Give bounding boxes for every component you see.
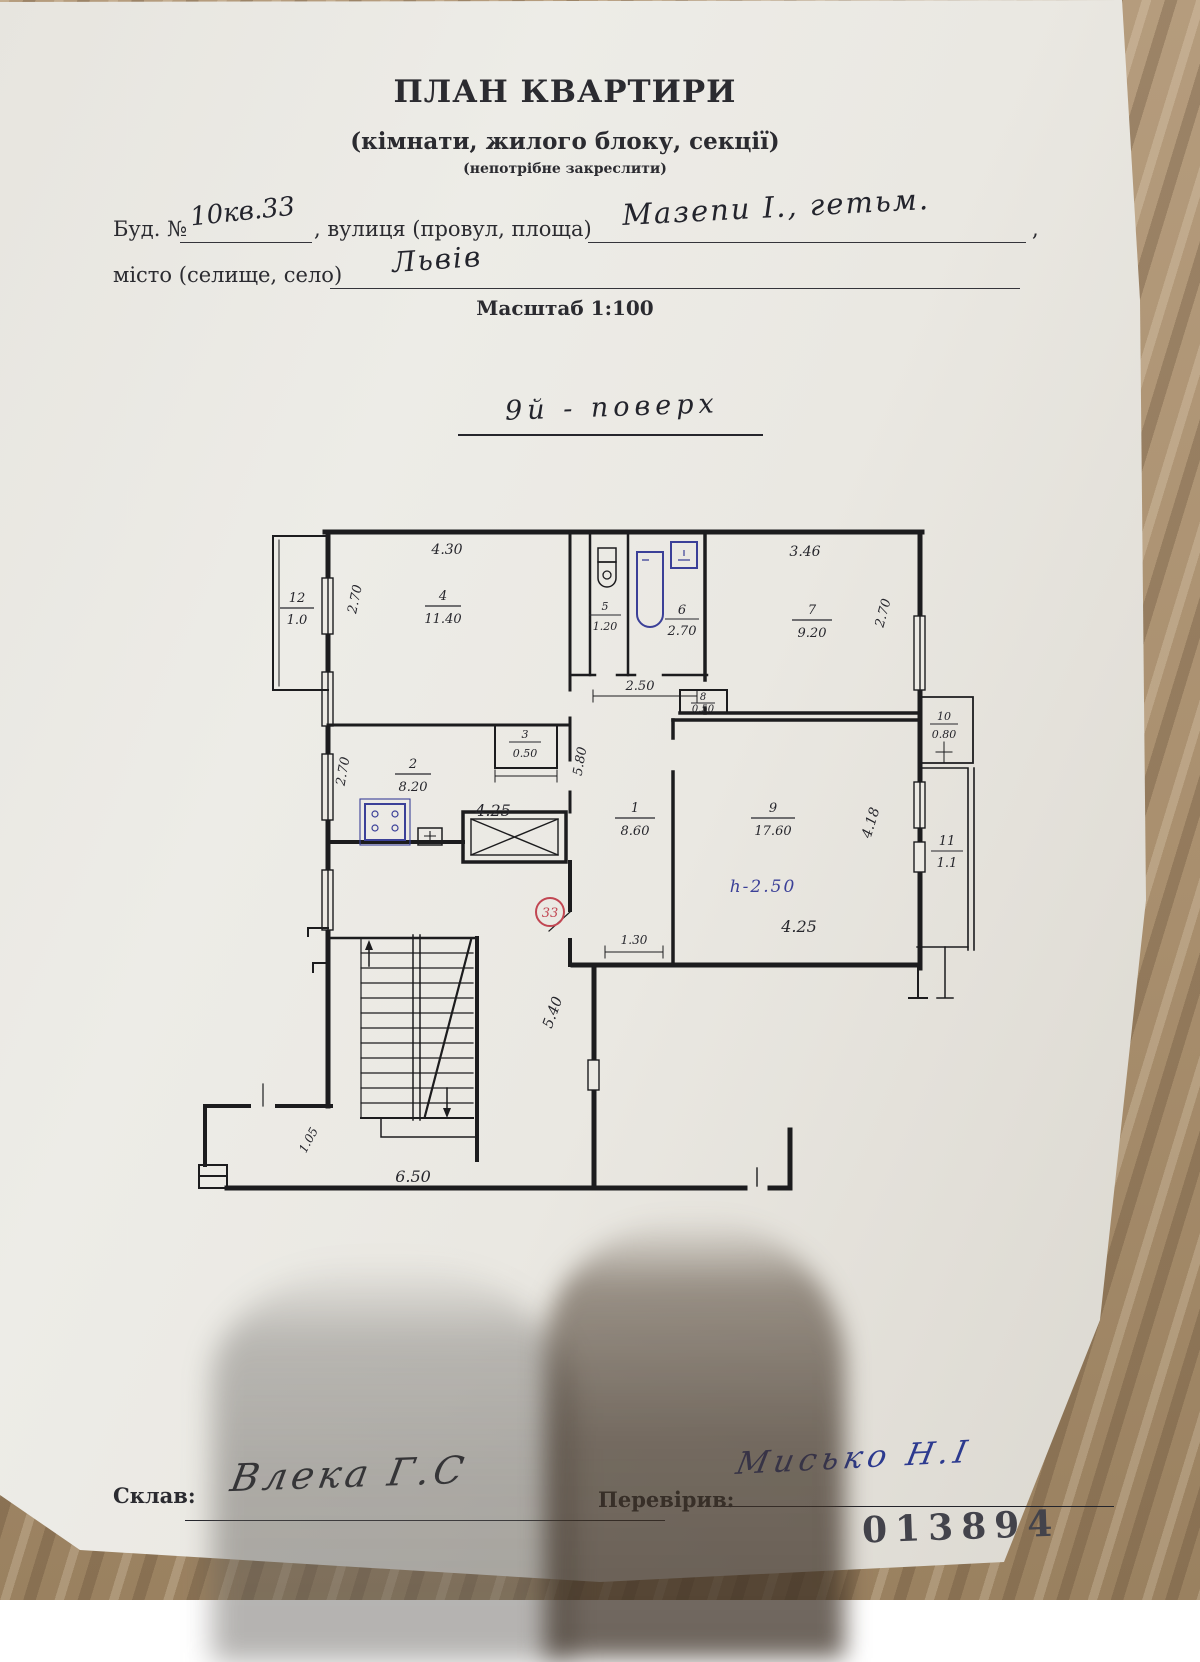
dim-room4-width: 4.30 xyxy=(430,542,462,558)
room-7-number: 7 xyxy=(808,603,817,618)
floor-note-underline xyxy=(458,404,763,436)
dim-entry-side: 1.05 xyxy=(296,1125,321,1155)
room-8-number: 8 xyxy=(700,692,706,703)
room-8-area: 0.50 xyxy=(692,704,715,715)
room-4-number: 4 xyxy=(438,589,447,604)
room-12-area: 1.0 xyxy=(287,613,308,628)
page-title: ПЛАН КВАРТИРИ xyxy=(165,74,965,110)
stove-icon xyxy=(360,799,410,845)
photo-of-document: ПЛАН КВАРТИРИ (кімнати, жилого блоку, се… xyxy=(0,0,1200,1600)
apartment-number: 33 xyxy=(542,906,559,921)
room-7-area: 9.20 xyxy=(798,626,827,641)
dim-entry-width: 6.50 xyxy=(395,1167,431,1186)
room-5-area: 1.20 xyxy=(593,620,618,633)
dim-room9-width: 4.25 xyxy=(780,917,817,936)
room-10-area: 0.80 xyxy=(932,728,957,741)
room-12-number: 12 xyxy=(289,591,306,606)
dim-room2-width: 4.25 xyxy=(474,801,511,820)
dim-room4-depth: 2.70 xyxy=(345,584,366,616)
bathtub-icon xyxy=(637,552,663,627)
city-value-handwritten: Львів xyxy=(391,240,483,279)
room-9-number: 9 xyxy=(769,801,777,816)
checked-by-label: Перевірив: xyxy=(598,1487,734,1512)
room-6-number: 6 xyxy=(678,603,686,618)
dim-bath-row: 2.50 xyxy=(625,679,655,694)
room-4-area: 11.40 xyxy=(424,612,461,627)
ceiling-height-note: h-2.50 xyxy=(730,877,797,897)
city-label: місто (селище, село) xyxy=(113,263,342,287)
room-1-number: 1 xyxy=(631,801,639,816)
dim-room2-depth: 2.70 xyxy=(333,756,353,788)
room-2-area: 8.20 xyxy=(399,780,428,795)
page-subtitle: (кімнати, жилого блоку, секції) xyxy=(165,128,965,155)
room-6-area: 2.70 xyxy=(667,624,697,639)
room-3-area: 0.50 xyxy=(513,747,538,760)
floor-plan-drawing: 33 4 11.40 2 8.20 3 0.50 5 1.20 6 2.70 7… xyxy=(185,520,990,1210)
room-3-number: 3 xyxy=(522,728,529,741)
stair-down-arrow xyxy=(443,1108,451,1118)
room-9-area: 17.60 xyxy=(754,824,791,839)
dim-room7-width: 3.46 xyxy=(789,544,820,560)
stair-up-arrow xyxy=(365,940,373,950)
room-2-number: 2 xyxy=(408,757,417,772)
room-10-number: 10 xyxy=(937,710,951,723)
room-11-area: 1.1 xyxy=(937,856,958,871)
dim-hall-bottom: 1.30 xyxy=(621,933,648,947)
scale-label: Масштаб 1:100 xyxy=(165,296,965,320)
toilet-icon xyxy=(598,548,616,587)
dim-hall-depth: 5.80 xyxy=(571,746,591,777)
made-by-label: Склав: xyxy=(113,1483,196,1508)
dim-room7-depth: 2.70 xyxy=(872,597,894,630)
room-5-number: 5 xyxy=(602,600,609,613)
room-11-number: 11 xyxy=(939,834,956,849)
street-label: , вулиця (провул, площа) xyxy=(314,217,592,241)
made-by-signature: Влека Г.С xyxy=(227,1448,471,1500)
room-1-area: 8.60 xyxy=(621,824,650,839)
washbasin-icon xyxy=(671,542,697,568)
dim-stair-depth: 5.40 xyxy=(540,995,566,1031)
stamp-number: 013894 xyxy=(861,1503,1061,1552)
page-note: (непотрібне закреслити) xyxy=(165,161,965,177)
dim-room9-depth: 4.18 xyxy=(859,805,884,841)
street-trailing-comma: , xyxy=(1032,217,1039,241)
building-label: Буд. № xyxy=(113,217,187,241)
